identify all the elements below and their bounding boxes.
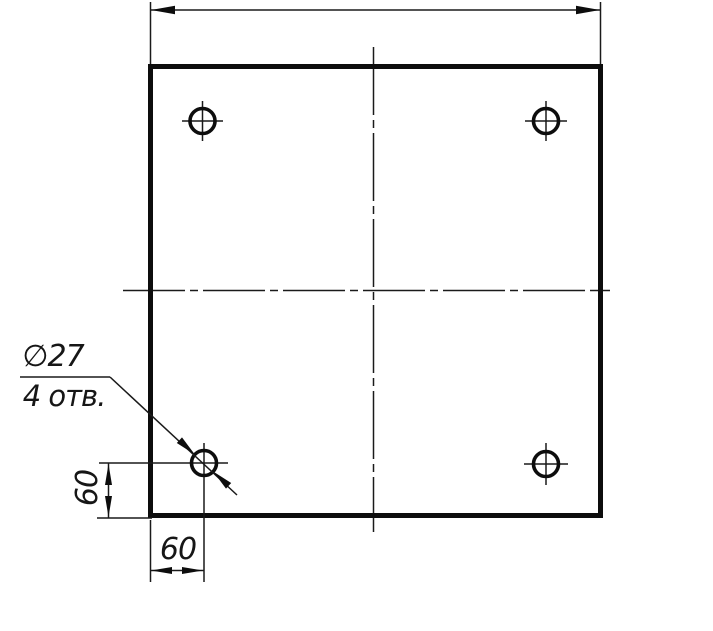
plate-drawing: ∅27 4 отв. 60 60 [0,0,713,631]
dimension-horizontal-60: 60 [151,520,204,582]
dimension-overall-width [151,2,601,64]
dimension-vertical-60: 60 [70,463,152,518]
label-offset-vertical: 60 [70,470,105,506]
label-hole-diameter: ∅27 [22,339,84,374]
arrowhead-left-icon [151,6,175,15]
arrowhead-down-icon [105,496,112,517]
hole-bottom-right [524,443,568,485]
centerlines [123,47,610,532]
arrowhead-left-icon [151,567,172,574]
leader-arrowhead-icon [213,472,231,489]
label-hole-count: 4 отв. [23,379,106,413]
engineering-drawing-canvas: ∅27 4 отв. 60 60 [0,0,713,631]
arrowhead-right-icon [576,6,600,15]
arrowhead-right-icon [182,567,203,574]
leader-arrowhead-icon [177,437,195,454]
hole-top-left [182,101,223,141]
label-offset-horizontal: 60 [160,532,196,567]
hole-top-right [525,101,567,141]
arrowhead-up-icon [105,464,112,485]
